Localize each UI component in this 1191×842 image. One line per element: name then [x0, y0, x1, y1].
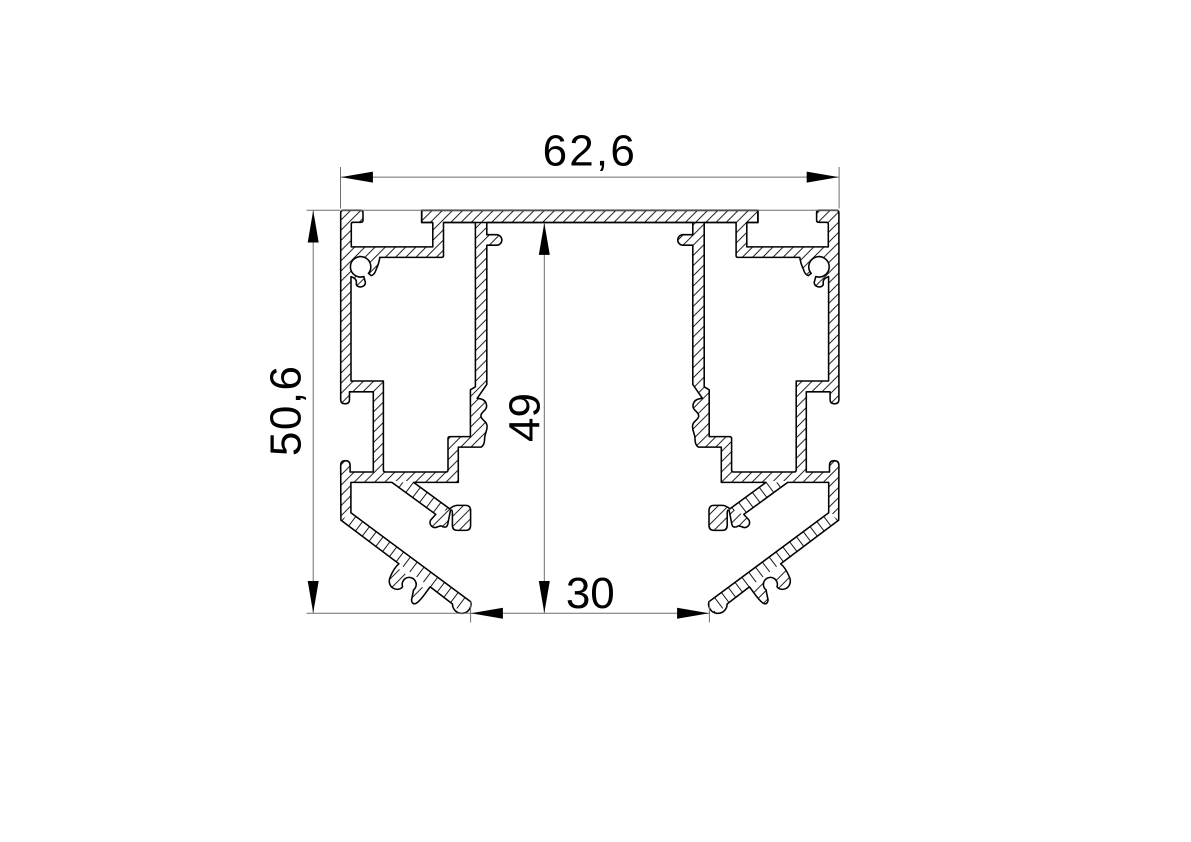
svg-text:50,6: 50,6: [262, 364, 311, 456]
svg-text:30: 30: [566, 569, 615, 618]
svg-text:49: 49: [501, 393, 550, 442]
svg-text:62,6: 62,6: [543, 127, 637, 176]
